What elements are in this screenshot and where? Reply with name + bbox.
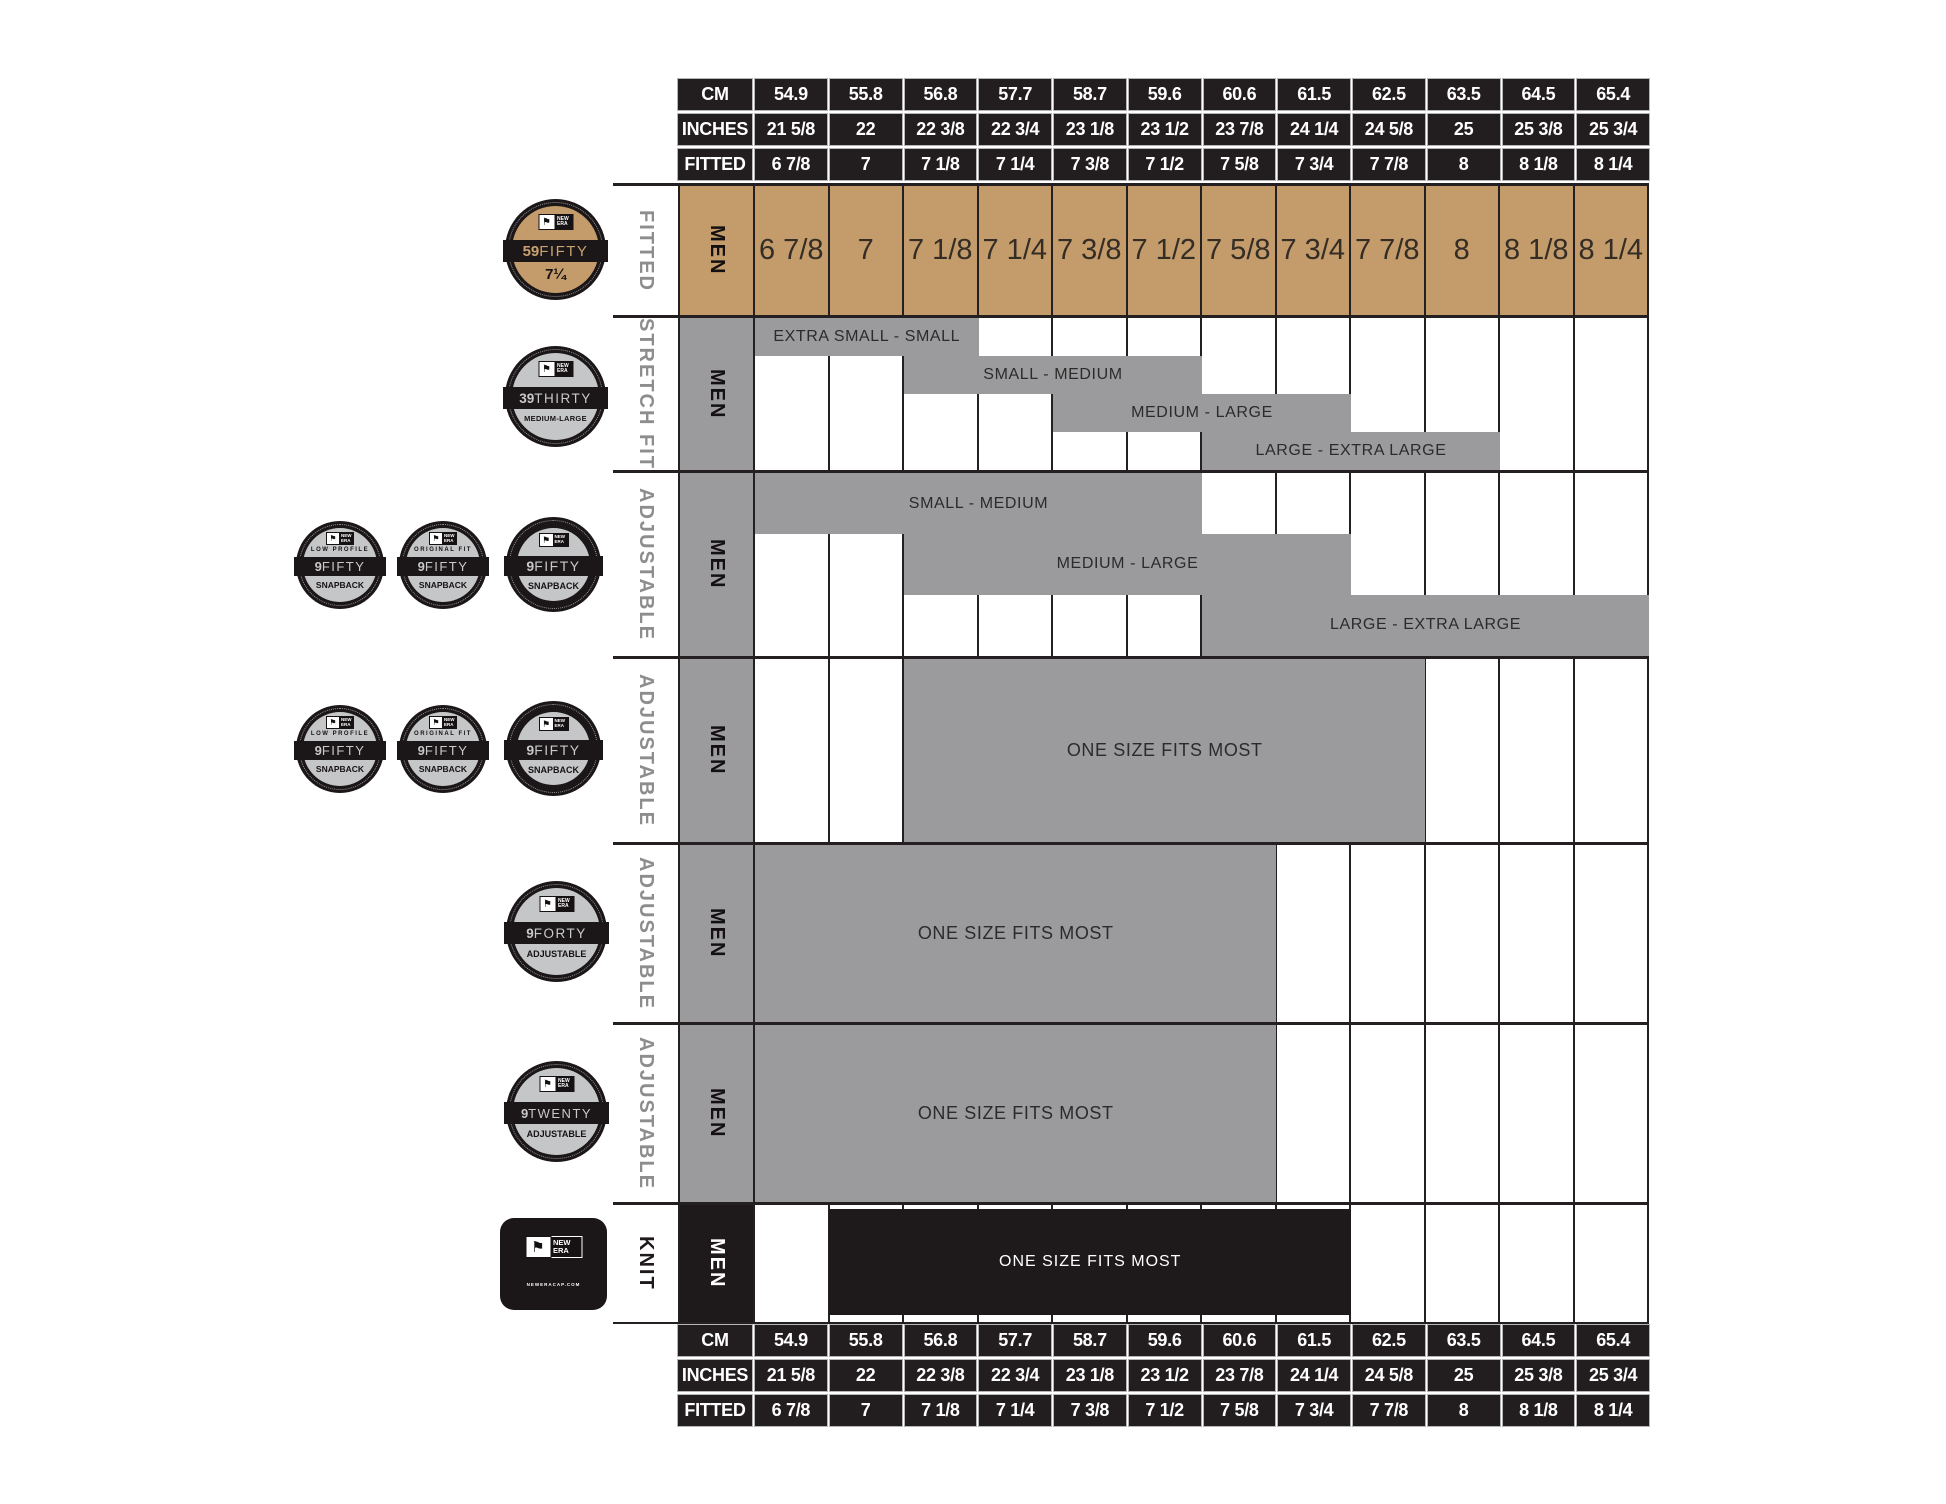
badge-9fifty-original-fit-2: ⚑ NEW ERA ORIGINAL FIT 9FIFTY SNAPBACK xyxy=(399,705,487,793)
footer-cm-cell: 64.5 xyxy=(1503,1325,1575,1356)
footer-fitted-cell: 7 3/8 xyxy=(1054,1395,1126,1426)
header-inches-cell: 25 xyxy=(1428,114,1500,145)
fitted-size-cell: 7 1/8 xyxy=(904,186,979,315)
badge-top-text: LOW PROFILE xyxy=(296,547,384,553)
badge-9fifty-low-profile: ⚑ NEW ERA LOW PROFILE 9FIFTY SNAPBACK xyxy=(296,521,384,609)
header-cm-cell: 58.7 xyxy=(1054,79,1126,110)
header-inches-cells: 21 5/82222 3/822 3/423 1/823 1/223 7/824… xyxy=(755,114,1649,145)
badge-style-band: 9FIFTY xyxy=(294,557,386,576)
header-inches-cell: 21 5/8 xyxy=(755,114,827,145)
footer-cm-cell: 54.9 xyxy=(755,1325,827,1356)
footer-cm-cell: 57.7 xyxy=(979,1325,1051,1356)
flag-icon: ⚑ xyxy=(538,361,555,377)
footer-inches-cell: 23 7/8 xyxy=(1204,1360,1276,1391)
brand-name: NEW ERA xyxy=(555,214,573,230)
header-fitted-cell: 7 xyxy=(830,149,902,180)
header-inches-cell: 22 3/4 xyxy=(979,114,1051,145)
badge-style-name: FIFTY xyxy=(322,743,366,758)
row-adjustable-9forty-data: ONE SIZE FITS MOST xyxy=(755,845,1649,1022)
badge-style-band: 9FIFTY xyxy=(504,556,603,576)
footer-cm-cell: 60.6 xyxy=(1204,1325,1276,1356)
badge-style-prefix: 39 xyxy=(519,391,534,406)
badge-9fifty-snapback: ⚑ NEW ERA 9FIFTY SNAPBACK xyxy=(506,517,601,612)
footer-cm-cell: 59.6 xyxy=(1129,1325,1201,1356)
header-inches-cell: 25 3/8 xyxy=(1503,114,1575,145)
badge-9forty: ⚑ NEW ERA 9FORTY ADJUSTABLE xyxy=(506,881,607,982)
row-stretch-data: EXTRA SMALL - SMALL SMALL - MEDIUM MEDIU… xyxy=(755,318,1649,470)
header-cm-cell: 65.4 xyxy=(1577,79,1649,110)
brand-name: NEW ERA xyxy=(554,717,569,731)
footer-spacer xyxy=(613,1360,675,1391)
row-adjustable-snapback: ADJUSTABLE MEN SMALL - MEDIUM MEDIUM - L… xyxy=(613,473,1649,659)
footer-inches-row: INCHES 21 5/82222 3/822 3/423 1/823 1/22… xyxy=(613,1360,1649,1391)
badge-style-prefix: 9 xyxy=(315,559,322,574)
row-type-label-text: STRETCH FIT xyxy=(635,318,656,470)
footer-inches-cells: 21 5/82222 3/822 3/423 1/823 1/223 7/824… xyxy=(755,1360,1649,1391)
size-band-osfm: ONE SIZE FITS MOST xyxy=(829,1209,1350,1315)
header-cm-cell: 62.5 xyxy=(1353,79,1425,110)
badge-style-prefix: 59 xyxy=(523,243,540,260)
footer-cm-cell: 65.4 xyxy=(1577,1325,1649,1356)
row-adjustable-9twenty-data: ONE SIZE FITS MOST xyxy=(755,1025,1649,1202)
badge-style-prefix: 9 xyxy=(526,742,534,758)
header-fitted-cell: 7 1/8 xyxy=(905,149,977,180)
row-knit-data: ONE SIZE FITS MOST xyxy=(755,1205,1649,1322)
row-fitted-data: 6 7/877 1/87 1/47 3/87 1/27 5/87 3/47 7/… xyxy=(755,186,1649,315)
row-type-label: ADJUSTABLE xyxy=(613,1025,678,1202)
row-type-label: STRETCH FIT xyxy=(613,318,678,470)
header-cm-cell: 60.6 xyxy=(1204,79,1276,110)
fitted-size-cell: 7 1/4 xyxy=(979,186,1054,315)
badge-style-prefix: 9 xyxy=(418,743,425,758)
gender-label: MEN xyxy=(705,908,728,958)
footer-fitted-cell: 8 1/8 xyxy=(1503,1395,1575,1426)
size-band-m-l: MEDIUM - LARGE xyxy=(904,534,1351,595)
badge-9fifty-snapback-2: ⚑ NEW ERA 9FIFTY SNAPBACK xyxy=(506,701,601,796)
badge-style-name: FIFTY xyxy=(425,559,469,574)
badge-size-caption: SNAPBACK xyxy=(296,580,384,590)
fitted-size-cell: 7 3/8 xyxy=(1053,186,1128,315)
flag-icon: ⚑ xyxy=(539,717,554,731)
gender-label: MEN xyxy=(705,225,728,275)
header-fitted-cell: 7 5/8 xyxy=(1204,149,1276,180)
row-type-label: ADJUSTABLE xyxy=(613,473,678,656)
brand-name: NEW ERA xyxy=(555,361,573,377)
new-era-flag-logo: ⚑ NEW ERA xyxy=(539,1076,574,1092)
header-inches-cell: 22 3/8 xyxy=(905,114,977,145)
badge-style-band: 59FIFTY xyxy=(503,240,608,262)
fitted-size-cell: 7 5/8 xyxy=(1202,186,1277,315)
new-era-flag-logo: ⚑ NEW ERA xyxy=(538,361,573,377)
row-type-label: ADJUSTABLE xyxy=(613,659,678,842)
size-band-s-m: SMALL - MEDIUM xyxy=(904,356,1202,394)
size-band-osfm: ONE SIZE FITS MOST xyxy=(904,659,1425,842)
size-band-s-m: SMALL - MEDIUM xyxy=(755,473,1202,534)
badge-style-name: FIFTY xyxy=(539,243,588,260)
size-band-xs-s: EXTRA SMALL - SMALL xyxy=(755,318,979,356)
badge-size-caption: ADJUSTABLE xyxy=(506,949,607,959)
fitted-size-cell: 6 7/8 xyxy=(755,186,830,315)
header-spacer xyxy=(613,79,675,110)
fitted-size-cell: 8 1/4 xyxy=(1575,186,1650,315)
fitted-size-cell: 7 1/2 xyxy=(1128,186,1203,315)
badge-9twenty: ⚑ NEW ERA 9TWENTY ADJUSTABLE xyxy=(506,1061,607,1162)
badge-style-band: 9FIFTY xyxy=(294,741,386,760)
badge-style-band: 9FIFTY xyxy=(397,741,489,760)
badge-style-prefix: 9 xyxy=(526,926,534,941)
row-fitted: FITTED MEN 6 7/877 1/87 1/47 3/87 1/27 5… xyxy=(613,186,1649,318)
brand-name: NEW ERA xyxy=(340,532,354,545)
flag-icon: ⚑ xyxy=(525,1236,551,1258)
footer-cm-cell: 61.5 xyxy=(1278,1325,1350,1356)
footer-inches-cell: 22 xyxy=(830,1360,902,1391)
badge-size-caption: MEDIUM-LARGE xyxy=(505,414,606,423)
footer-inches-cell: 21 5/8 xyxy=(755,1360,827,1391)
header-cm-cells: 54.955.856.857.758.759.660.661.562.563.5… xyxy=(755,79,1649,110)
badge-style-prefix: 9 xyxy=(521,1106,528,1121)
header-cm-cell: 61.5 xyxy=(1278,79,1350,110)
new-era-flag-logo: ⚑ NEW ERA xyxy=(429,532,457,545)
footer-fitted-cell: 7 3/4 xyxy=(1278,1395,1350,1426)
header-inches-cell: 25 3/4 xyxy=(1577,114,1649,145)
gender-label: MEN xyxy=(705,725,728,775)
header-fitted-cell: 7 3/8 xyxy=(1054,149,1126,180)
footer-inches-cell: 23 1/8 xyxy=(1054,1360,1126,1391)
header-inches-cell: 23 1/8 xyxy=(1054,114,1126,145)
gender-cell: MEN xyxy=(678,318,755,470)
flag-icon: ⚑ xyxy=(539,1076,556,1092)
fitted-size-cell: 8 xyxy=(1426,186,1501,315)
footer-cm-cell: 62.5 xyxy=(1353,1325,1425,1356)
gender-cell: MEN xyxy=(678,659,755,842)
flag-icon: ⚑ xyxy=(326,532,340,545)
gender-cell: MEN xyxy=(678,1205,755,1322)
badge-style-band: 9FIFTY xyxy=(504,740,603,760)
badge-style-name: TWENTY xyxy=(528,1106,592,1121)
header-cm-cell: 59.6 xyxy=(1129,79,1201,110)
size-table-header: CM 54.955.856.857.758.759.660.661.562.56… xyxy=(613,79,1649,184)
header-fitted-cell: 6 7/8 xyxy=(755,149,827,180)
footer-fitted-cells: 6 7/877 1/87 1/47 3/87 1/27 5/87 3/47 7/… xyxy=(755,1395,1649,1426)
row-adjustable-osfm-data: ONE SIZE FITS MOST xyxy=(755,659,1649,842)
badge-size-caption: SNAPBACK xyxy=(399,580,487,590)
badge-top-text: LOW PROFILE xyxy=(296,731,384,737)
brand-name: NEW ERA xyxy=(551,1236,582,1258)
header-fitted-cell: 7 1/2 xyxy=(1129,149,1201,180)
new-era-flag-logo: ⚑ NEW ERA xyxy=(538,214,573,230)
header-inches-row: INCHES 21 5/82222 3/822 3/423 1/823 1/22… xyxy=(613,114,1649,145)
footer-fitted-cell: 7 5/8 xyxy=(1204,1395,1276,1426)
badge-style-band: 39THIRTY xyxy=(503,387,608,409)
footer-fitted-cell: 8 xyxy=(1428,1395,1500,1426)
header-fitted-cell: 8 1/4 xyxy=(1577,149,1649,180)
footer-cm-label: CM xyxy=(678,1325,752,1356)
row-type-label: ADJUSTABLE xyxy=(613,845,678,1022)
footer-cm-cells: 54.955.856.857.758.759.660.661.562.563.5… xyxy=(755,1325,1649,1356)
header-fitted-cells: 6 7/877 1/87 1/47 3/87 1/27 5/87 3/47 7/… xyxy=(755,149,1649,180)
flag-icon: ⚑ xyxy=(429,716,443,729)
header-fitted-label: FITTED xyxy=(678,149,752,180)
badge-top-text: ORIGINAL FIT xyxy=(399,731,487,737)
header-cm-cell: 56.8 xyxy=(905,79,977,110)
footer-inches-cell: 22 3/8 xyxy=(905,1360,977,1391)
row-type-label: FITTED xyxy=(613,186,678,315)
size-table: CM 54.955.856.857.758.759.660.661.562.56… xyxy=(613,79,1649,1429)
header-inches-cell: 23 1/2 xyxy=(1129,114,1201,145)
flag-icon: ⚑ xyxy=(429,532,443,545)
gender-label: MEN xyxy=(705,1088,728,1138)
fitted-size-cell: 7 7/8 xyxy=(1351,186,1426,315)
brand-name: NEW ERA xyxy=(340,716,354,729)
row-type-label: KNIT xyxy=(613,1205,678,1322)
footer-fitted-cell: 7 1/8 xyxy=(905,1395,977,1426)
badge-style-name: FORTY xyxy=(534,926,587,941)
footer-inches-cell: 25 3/4 xyxy=(1577,1360,1649,1391)
new-era-flag-logo: ⚑ NEW ERA xyxy=(326,716,354,729)
gender-label: MEN xyxy=(705,1238,728,1288)
gender-label: MEN xyxy=(705,539,728,589)
badge-size-caption: SNAPBACK xyxy=(506,765,601,775)
row-type-label-text: KNIT xyxy=(635,1236,656,1291)
header-cm-label: CM xyxy=(678,79,752,110)
fitted-size-cell: 7 3/4 xyxy=(1277,186,1352,315)
header-fitted-cell: 7 1/4 xyxy=(979,149,1051,180)
size-band-l-xl: LARGE - EXTRA LARGE xyxy=(1202,432,1500,470)
header-cm-cell: 63.5 xyxy=(1428,79,1500,110)
gender-cell: MEN xyxy=(678,1025,755,1202)
footer-cm-cell: 56.8 xyxy=(905,1325,977,1356)
footer-inches-cell: 23 1/2 xyxy=(1129,1360,1201,1391)
flag-icon: ⚑ xyxy=(538,214,555,230)
brand-name: NEW ERA xyxy=(554,533,569,547)
header-inches-cell: 24 5/8 xyxy=(1353,114,1425,145)
row-type-label-text: ADJUSTABLE xyxy=(635,857,656,1010)
new-era-flag-logo: ⚑ NEW ERA xyxy=(539,717,569,731)
badge-size-caption: 7¼ xyxy=(505,266,606,283)
size-band-osfm: ONE SIZE FITS MOST xyxy=(755,845,1276,1022)
header-fitted-cell: 8 xyxy=(1428,149,1500,180)
header-fitted-row: FITTED 6 7/877 1/87 1/47 3/87 1/27 5/87 … xyxy=(613,149,1649,180)
footer-inches-cell: 24 1/4 xyxy=(1278,1360,1350,1391)
brand-name: NEW ERA xyxy=(443,716,457,729)
badge-size-caption: SNAPBACK xyxy=(399,764,487,774)
footer-inches-label: INCHES xyxy=(678,1360,752,1391)
header-inches-cell: 24 1/4 xyxy=(1278,114,1350,145)
header-spacer xyxy=(613,114,675,145)
new-era-flag-logo: ⚑ NEW ERA xyxy=(525,1236,582,1258)
badge-style-name: THIRTY xyxy=(534,391,592,406)
header-inches-cell: 22 xyxy=(830,114,902,145)
badge-style-band: 9FORTY xyxy=(504,922,609,944)
size-band-m-l: MEDIUM - LARGE xyxy=(1053,394,1351,432)
header-fitted-cell: 8 1/8 xyxy=(1503,149,1575,180)
new-era-flag-logo: ⚑ NEW ERA xyxy=(429,716,457,729)
size-table-footer: CM 54.955.856.857.758.759.660.661.562.56… xyxy=(613,1325,1649,1430)
flag-icon: ⚑ xyxy=(539,533,554,547)
flag-icon: ⚑ xyxy=(326,716,340,729)
footer-fitted-cell: 7 1/4 xyxy=(979,1395,1051,1426)
header-fitted-cell: 7 7/8 xyxy=(1353,149,1425,180)
badge-style-name: FIFTY xyxy=(534,742,580,758)
footer-fitted-label: FITTED xyxy=(678,1395,752,1426)
badge-size-caption: SNAPBACK xyxy=(296,764,384,774)
footer-fitted-cell: 7 1/2 xyxy=(1129,1395,1201,1426)
footer-spacer xyxy=(613,1325,675,1356)
brand-site-text: NEWERACAP.COM xyxy=(500,1282,607,1287)
gender-cell: MEN xyxy=(678,186,755,315)
row-adjustable-snapback-data: SMALL - MEDIUM MEDIUM - LARGE LARGE - EX… xyxy=(755,473,1649,656)
badge-size-caption: ADJUSTABLE xyxy=(506,1129,607,1139)
row-adjustable-osfm: ADJUSTABLE MEN ONE SIZE FITS MOST xyxy=(613,659,1649,845)
header-cm-cell: 64.5 xyxy=(1503,79,1575,110)
header-cm-row: CM 54.955.856.857.758.759.660.661.562.56… xyxy=(613,79,1649,110)
badge-style-band: 9TWENTY xyxy=(504,1102,609,1124)
row-adjustable-9twenty: ADJUSTABLE MEN ONE SIZE FITS MOST xyxy=(613,1025,1649,1205)
footer-fitted-cell: 7 7/8 xyxy=(1353,1395,1425,1426)
footer-cm-cell: 63.5 xyxy=(1428,1325,1500,1356)
header-spacer xyxy=(613,149,675,180)
header-cm-cell: 54.9 xyxy=(755,79,827,110)
size-band-osfm: ONE SIZE FITS MOST xyxy=(755,1025,1276,1202)
header-inches-cell: 23 7/8 xyxy=(1204,114,1276,145)
badge-size-caption: SNAPBACK xyxy=(506,581,601,591)
footer-fitted-cell: 7 xyxy=(830,1395,902,1426)
new-era-flag-logo: ⚑ NEW ERA xyxy=(539,896,574,912)
fitted-size-cell: 7 xyxy=(830,186,905,315)
header-cm-cell: 55.8 xyxy=(830,79,902,110)
brand-name: NEW ERA xyxy=(556,1076,574,1092)
header-fitted-cell: 7 3/4 xyxy=(1278,149,1350,180)
badge-style-prefix: 9 xyxy=(418,559,425,574)
row-type-label-text: ADJUSTABLE xyxy=(635,674,656,827)
flag-icon: ⚑ xyxy=(539,896,556,912)
footer-fitted-row: FITTED 6 7/877 1/87 1/47 3/87 1/27 5/87 … xyxy=(613,1395,1649,1426)
new-era-flag-logo: ⚑ NEW ERA xyxy=(539,533,569,547)
fitted-size-cells: 6 7/877 1/87 1/47 3/87 1/27 5/87 3/47 7/… xyxy=(755,186,1649,315)
knit-new-era-logo: ⚑ NEW ERA NEWERACAP.COM xyxy=(500,1218,607,1310)
header-inches-label: INCHES xyxy=(678,114,752,145)
badge-style-name: FIFTY xyxy=(425,743,469,758)
row-knit: KNIT MEN ONE SIZE FITS MOST xyxy=(613,1205,1649,1324)
size-band-l-xl: LARGE - EXTRA LARGE xyxy=(1202,595,1649,656)
footer-inches-cell: 25 3/8 xyxy=(1503,1360,1575,1391)
row-type-label-text: ADJUSTABLE xyxy=(635,1037,656,1190)
badge-9fifty-original-fit: ⚑ NEW ERA ORIGINAL FIT 9FIFTY SNAPBACK xyxy=(399,521,487,609)
footer-cm-cell: 58.7 xyxy=(1054,1325,1126,1356)
footer-cm-cell: 55.8 xyxy=(830,1325,902,1356)
gender-cell: MEN xyxy=(678,473,755,656)
badge-39thirty: ⚑ NEW ERA 39THIRTY MEDIUM-LARGE xyxy=(505,346,606,447)
fitted-size-cell: 8 1/8 xyxy=(1500,186,1575,315)
footer-spacer xyxy=(613,1395,675,1426)
brand-name: NEW ERA xyxy=(556,896,574,912)
header-cm-cell: 57.7 xyxy=(979,79,1051,110)
hat-size-chart: ⚑ NEW ERA 59FIFTY 7¼ ⚑ NEW ERA 39THIRTY … xyxy=(0,0,1946,1504)
brand-name: NEW ERA xyxy=(443,532,457,545)
badge-style-prefix: 9 xyxy=(315,743,322,758)
badge-style-band: 9FIFTY xyxy=(397,557,489,576)
row-type-label-text: ADJUSTABLE xyxy=(635,488,656,641)
footer-inches-cell: 25 xyxy=(1428,1360,1500,1391)
footer-inches-cell: 22 3/4 xyxy=(979,1360,1051,1391)
row-adjustable-9forty: ADJUSTABLE MEN ONE SIZE FITS MOST xyxy=(613,845,1649,1025)
footer-fitted-cell: 6 7/8 xyxy=(755,1395,827,1426)
badge-style-name: FIFTY xyxy=(322,559,366,574)
row-stretch-fit: STRETCH FIT MEN EXTRA SMALL - SMALL SMAL… xyxy=(613,318,1649,473)
badge-9fifty-low-profile-2: ⚑ NEW ERA LOW PROFILE 9FIFTY SNAPBACK xyxy=(296,705,384,793)
badge-59fifty: ⚑ NEW ERA 59FIFTY 7¼ xyxy=(505,199,606,300)
gender-label: MEN xyxy=(705,369,728,419)
footer-fitted-cell: 8 1/4 xyxy=(1577,1395,1649,1426)
badge-style-prefix: 9 xyxy=(526,558,534,574)
size-table-body: FITTED MEN 6 7/877 1/87 1/47 3/87 1/27 5… xyxy=(613,183,1649,1324)
row-type-label-text: FITTED xyxy=(635,210,656,292)
footer-cm-row: CM 54.955.856.857.758.759.660.661.562.56… xyxy=(613,1325,1649,1356)
footer-inches-cell: 24 5/8 xyxy=(1353,1360,1425,1391)
badge-style-name: FIFTY xyxy=(534,558,580,574)
gender-cell: MEN xyxy=(678,845,755,1022)
new-era-flag-logo: ⚑ NEW ERA xyxy=(326,532,354,545)
badge-top-text: ORIGINAL FIT xyxy=(399,547,487,553)
